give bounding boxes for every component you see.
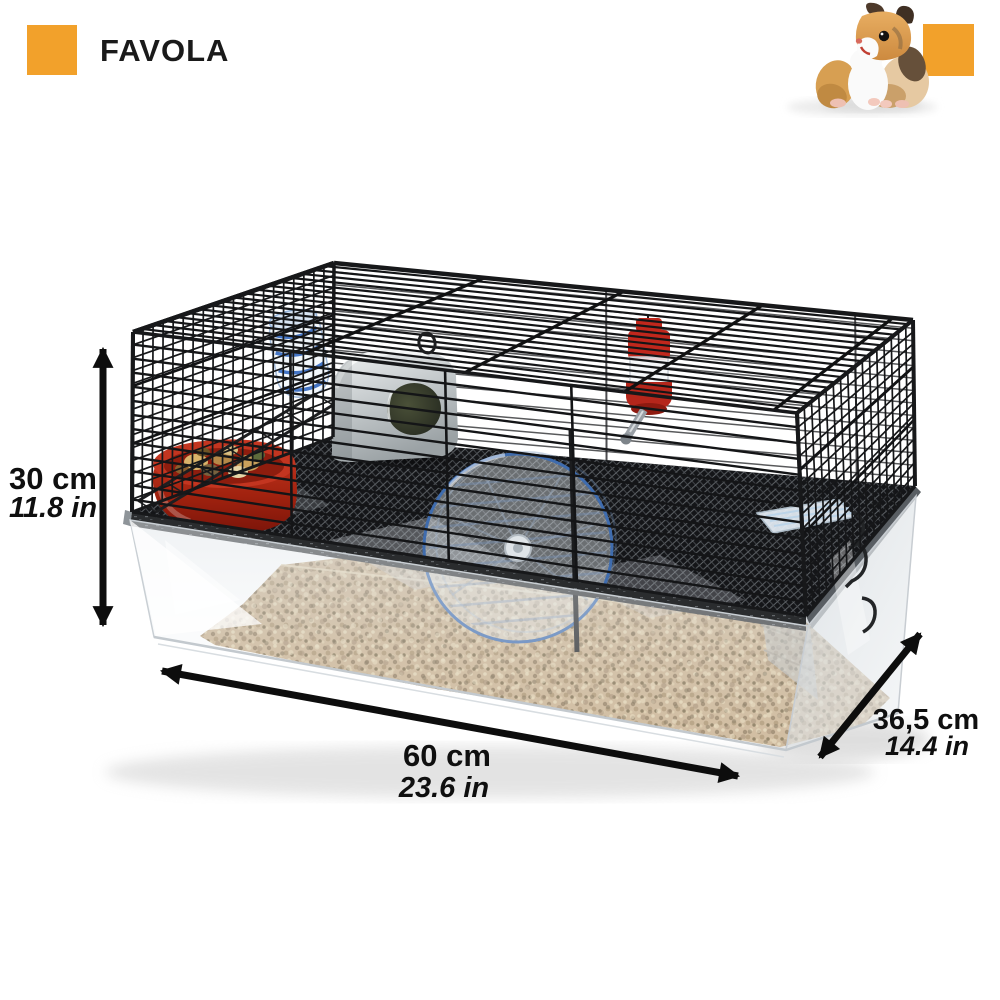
hamster-photo <box>787 3 937 116</box>
depth-label-in: 14.4 in <box>885 731 969 761</box>
corner-square <box>923 24 974 76</box>
height-label-cm: 30 cm <box>9 461 97 496</box>
cage-top-wires <box>133 263 913 413</box>
dimension-height: 30 cm 11.8 in <box>9 349 103 625</box>
length-label-in: 23.6 in <box>398 772 489 804</box>
product-sheet: FAVOLA <box>0 0 1000 1000</box>
height-label-in: 11.8 in <box>9 492 97 524</box>
length-label-cm: 60 cm <box>403 738 491 773</box>
cage-illustration: 30 cm 11.8 in 60 cm 23.6 in 36,5 cm 14.4… <box>0 0 1000 1000</box>
hamster-house <box>332 349 458 467</box>
